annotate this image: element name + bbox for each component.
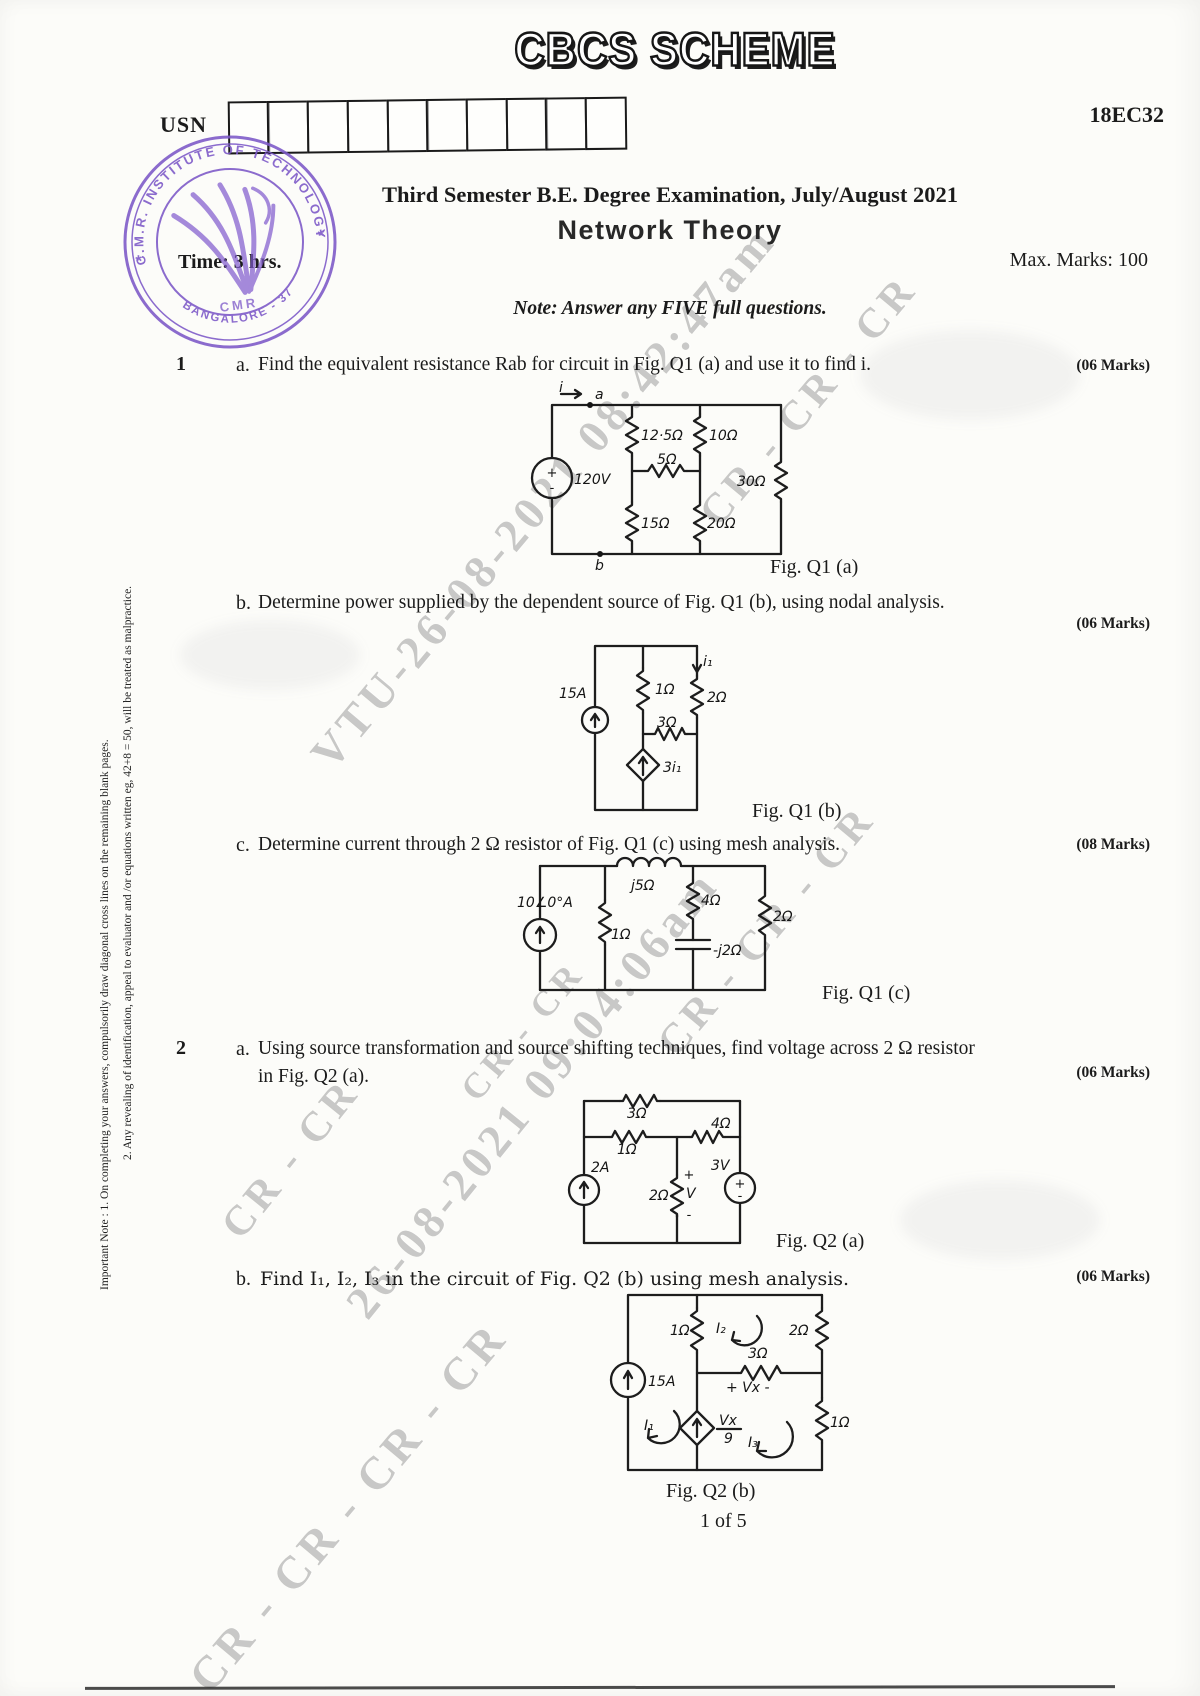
- source-value: 15A: [648, 1374, 675, 1390]
- fig-q2b-caption: Fig. Q2 (b): [666, 1480, 755, 1503]
- fig-q1b-circuit: 15A 1Ω 3i₁ 3Ω i₁ 2Ω: [555, 638, 745, 823]
- resistor-value: 4Ω: [701, 893, 721, 909]
- stamp-arc-text: C.M.R. INSTITUTE OF TECHNOLOGY: [118, 129, 329, 267]
- source-plus: +: [547, 466, 558, 481]
- fig-q2a-caption: Fig. Q2 (a): [776, 1230, 864, 1253]
- usn-box: [505, 98, 548, 152]
- node-a-label: a: [595, 387, 604, 403]
- resistor-value: 3Ω: [627, 1106, 647, 1122]
- dependent-source-value: 3i₁: [663, 760, 681, 776]
- scan-artifact: [900, 1180, 1100, 1260]
- mesh-current-label: I₂: [716, 1321, 726, 1337]
- resistor-value: 3Ω: [748, 1346, 768, 1362]
- source-value: 120V: [574, 472, 612, 488]
- resistor-value: 30Ω: [737, 474, 766, 490]
- resistor-value: 12·5Ω: [641, 428, 683, 444]
- q2a-text-line2: in Fig. Q2 (a).: [258, 1066, 369, 1088]
- source-minus: -: [738, 1189, 743, 1204]
- palm-leaf-icon: [170, 178, 284, 301]
- course-code: 18EC32: [1089, 102, 1164, 128]
- scan-artifact: [860, 330, 1080, 420]
- usn-box: [426, 99, 469, 153]
- fig-q1a-caption: Fig. Q1 (a): [770, 556, 858, 579]
- q2b-letter: b.: [236, 1268, 251, 1291]
- stamp-arc-textpath: C.M.R. INSTITUTE OF TECHNOLOGY: [118, 129, 329, 267]
- source-minus: -: [550, 481, 555, 496]
- node-b-label: b: [595, 558, 604, 574]
- resistor-value: 2Ω: [789, 1323, 809, 1339]
- page-number: 1 of 5: [700, 1510, 747, 1533]
- watermark-cr: CR - CR - CR - CR: [178, 1311, 518, 1696]
- resistor-value: 15Ω: [641, 516, 670, 532]
- scan-edge-line: [85, 1685, 1115, 1690]
- resistor-value: 1Ω: [611, 927, 631, 943]
- usn-box: [466, 98, 509, 152]
- q1b-letter: b.: [236, 592, 251, 615]
- q2a-marks: (06 Marks): [1076, 1064, 1150, 1082]
- q1a-marks: (06 Marks): [1076, 357, 1150, 375]
- resistor-value: 3Ω: [657, 715, 677, 731]
- fig-q1a-circuit: + - i a b 120V 12·5Ω 10Ω 5Ω 30Ω 15Ω 20Ω: [515, 384, 815, 574]
- resistor-value: 4Ω: [711, 1116, 731, 1132]
- scheme-banner: CBCS SCHEME: [495, 23, 855, 77]
- q1a-letter: a.: [236, 354, 250, 377]
- resistor-value: 10Ω: [709, 428, 738, 444]
- mesh-current-label: I₁: [644, 1418, 654, 1434]
- q2b-marks: (06 Marks): [1076, 1268, 1150, 1286]
- resistor-value: 5Ω: [657, 452, 677, 468]
- source-value: 15A: [559, 686, 586, 702]
- current-label: i₁: [703, 654, 713, 670]
- voltage-marking: + Vx -: [726, 1380, 770, 1396]
- q1c-letter: c.: [236, 834, 250, 857]
- margin-note-line2: 2. Any revealing of identification, appe…: [117, 370, 140, 1290]
- usn-box: [386, 99, 429, 153]
- resistor-value: 2Ω: [707, 690, 727, 706]
- q1c-marks: (08 Marks): [1076, 836, 1150, 854]
- watermark-cr: CR - CR: [212, 1069, 370, 1248]
- resistor-value: 20Ω: [707, 516, 736, 532]
- resistor-value: 2Ω: [649, 1188, 669, 1204]
- resistor-value: 1Ω: [617, 1142, 637, 1158]
- source-value: 3V: [711, 1158, 731, 1174]
- resistor-value: 2Ω: [773, 909, 793, 925]
- exam-paper-page: VTU-26-08-2021 08:42:47am 26-08-2021 09:…: [0, 0, 1200, 1696]
- dependent-source-denominator: 9: [724, 1431, 733, 1447]
- fig-q1c-circuit: j5Ω 10∠0°A 1Ω 4Ω -j2Ω 2Ω: [505, 845, 835, 1000]
- voltage-label: V: [686, 1186, 697, 1202]
- q1b-marks: (06 Marks): [1076, 615, 1150, 633]
- usn-label: USN: [160, 112, 207, 138]
- fig-q1b-caption: Fig. Q1 (b): [752, 800, 841, 823]
- mesh-current-label: I₃: [748, 1435, 758, 1451]
- voltage-plus: +: [684, 1168, 695, 1183]
- fig-q2a-circuit: 3Ω 1Ω 4Ω 2A 2Ω + V - + - 3V: [565, 1080, 800, 1255]
- usn-box: [346, 99, 389, 153]
- q1b-text: Determine power supplied by the dependen…: [258, 592, 945, 614]
- resistor-value: 1Ω: [655, 682, 675, 698]
- question-1-number: 1: [176, 353, 186, 376]
- current-label: i: [559, 380, 563, 396]
- inductor-value: j5Ω: [629, 878, 655, 894]
- fig-q2b-circuit: 15A I₁ 1Ω Vx 9 I₂ 2Ω 1Ω 3Ω + Vx - I₃: [608, 1283, 918, 1483]
- dependent-source-numerator: Vx: [719, 1413, 738, 1429]
- question-2-number: 2: [176, 1037, 186, 1060]
- max-marks: Max. Marks: 100: [1010, 249, 1148, 272]
- scan-artifact: [180, 620, 360, 690]
- source-value: 10∠0°A: [517, 895, 573, 911]
- resistor-value: 1Ω: [830, 1415, 850, 1431]
- usn-box: [585, 97, 628, 151]
- margin-note-line1: Important Note : 1. On completing your a…: [94, 370, 117, 1290]
- fig-q1c-caption: Fig. Q1 (c): [822, 982, 910, 1005]
- source-value: 2A: [591, 1160, 609, 1176]
- capacitor-value: -j2Ω: [713, 943, 742, 959]
- q2a-letter: a.: [236, 1038, 250, 1061]
- resistor-value: 1Ω: [670, 1323, 690, 1339]
- margin-note: Important Note : 1. On completing your a…: [94, 370, 142, 1290]
- institute-stamp: C.M.R. INSTITUTE OF TECHNOLOGY BANGALORE…: [108, 120, 352, 364]
- q2a-text-line1: Using source transformation and source s…: [258, 1038, 975, 1060]
- voltage-minus: -: [687, 1208, 692, 1223]
- usn-box: [545, 97, 588, 151]
- q1a-text: Find the equivalent resistance Rab for c…: [258, 354, 871, 376]
